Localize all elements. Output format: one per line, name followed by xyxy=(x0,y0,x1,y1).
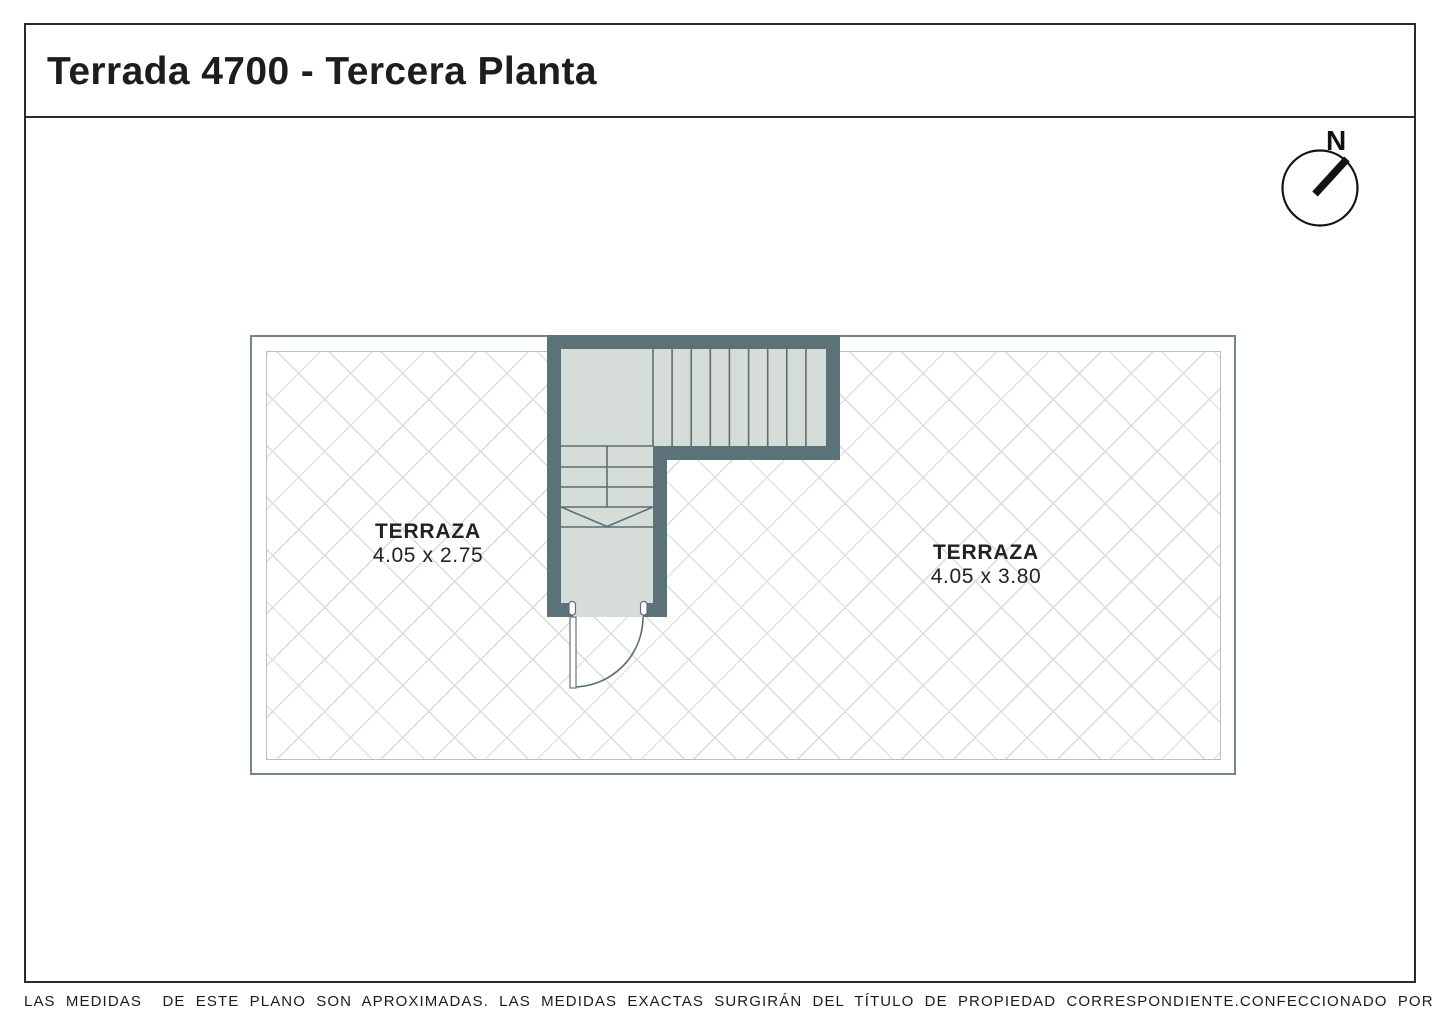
room-dimensions: 4.05 x 3.80 xyxy=(876,565,1096,589)
stair-well-fill xyxy=(561,349,653,603)
stair-wall-right-upper xyxy=(826,335,840,460)
room-name: TERRAZA xyxy=(318,520,538,544)
footer-disclaimer: LAS MEDIDAS DE ESTE PLANO SON APROXIMADA… xyxy=(24,993,1240,1010)
stair-wall-left xyxy=(547,335,561,617)
room-label-terraza-left: TERRAZA 4.05 x 2.75 xyxy=(318,520,538,568)
floor-plan-page: Terrada 4700 - Tercera Planta N xyxy=(0,0,1440,1018)
room-label-terraza-right: TERRAZA 4.05 x 3.80 xyxy=(876,541,1096,589)
door-jamb-wall-right xyxy=(643,603,667,617)
page-title: Terrada 4700 - Tercera Planta xyxy=(47,50,597,94)
footer: LAS MEDIDAS DE ESTE PLANO SON APROXIMADA… xyxy=(24,993,1416,1010)
door-jamb-wall-left xyxy=(547,603,573,617)
stair-wall-right-lower xyxy=(653,446,667,617)
room-dimensions: 4.05 x 2.75 xyxy=(318,544,538,568)
door-opening xyxy=(573,603,643,617)
stair-wall-top xyxy=(547,335,840,349)
room-name: TERRAZA xyxy=(876,541,1096,565)
footer-credit: CONFECCIONADO POR ESTUDIO NARTEX xyxy=(1240,993,1440,1010)
stair-wall-bottom-upper xyxy=(653,446,840,460)
compass-north-label: N xyxy=(1326,125,1346,157)
